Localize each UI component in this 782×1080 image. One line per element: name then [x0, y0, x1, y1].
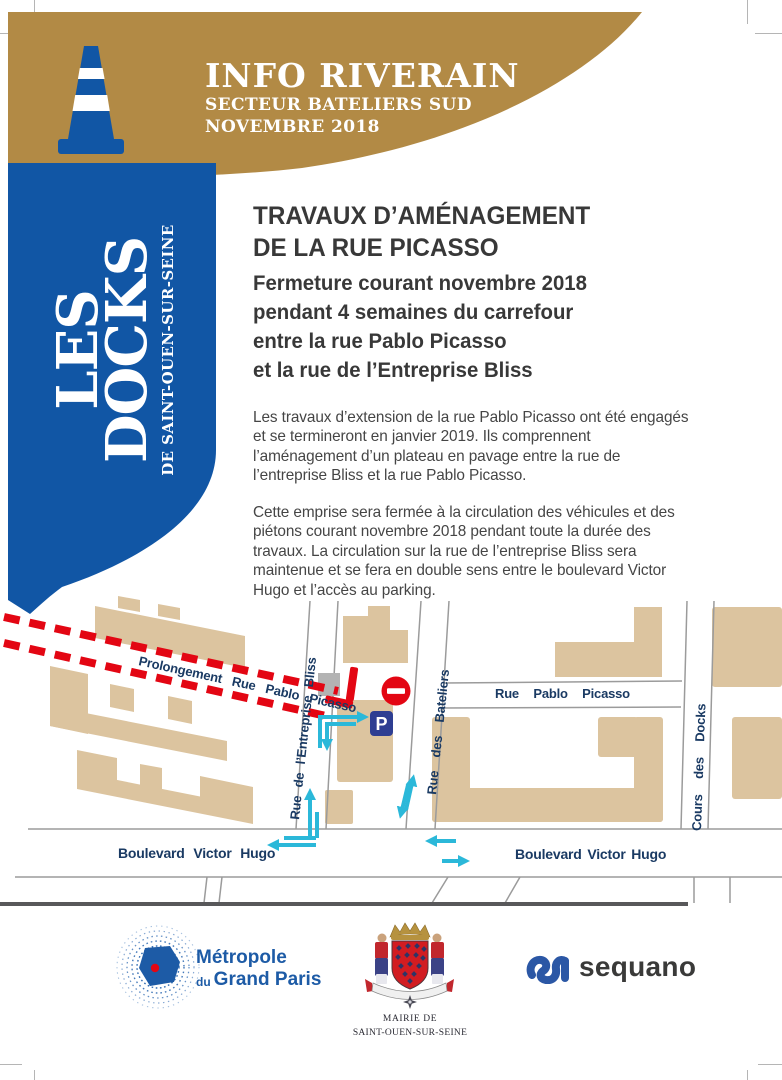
- parking-sign: P: [370, 711, 393, 736]
- header-title: INFO RIVERAIN: [205, 56, 520, 95]
- crest-shield: [392, 941, 428, 989]
- map-building: [432, 788, 663, 822]
- map-building: [732, 717, 782, 799]
- sidebar-title-docks: DOCKS: [103, 214, 152, 486]
- mairie-name-line1: MAIRIE DE: [320, 1014, 500, 1024]
- article-title-line1: TRAVAUX D’AMÉNAGEMENT: [253, 200, 719, 232]
- article-paragraph-2: Cette emprise sera fermée à la circulati…: [253, 503, 698, 601]
- map-building: [343, 606, 408, 663]
- article-title-line2: DE LA RUE PICASSO: [253, 232, 719, 264]
- sequano-wordmark: sequano: [579, 951, 696, 983]
- metropole-paris-dot: [151, 964, 159, 972]
- map-building: [325, 790, 353, 824]
- map-building: [110, 684, 134, 712]
- street-label-cours-des-docks: Cours des Docks: [689, 703, 708, 831]
- road-line-parcels: [204, 877, 730, 903]
- crop-mark: [747, 1070, 748, 1080]
- article-paragraph-1: Les travaux d’extension de la rue Pablo …: [253, 408, 698, 486]
- crop-mark: [34, 1070, 35, 1080]
- header-sector: SECTEUR BATELIERS SUD: [205, 95, 472, 115]
- map-building-cluster-west: [50, 596, 253, 824]
- crop-mark: [0, 1064, 22, 1065]
- metropole-territory-shape: [139, 946, 180, 986]
- no-entry-icon: [382, 677, 411, 706]
- article-lead-line4: et la rue de l’Entreprise Bliss: [253, 357, 719, 386]
- map-building: [712, 607, 782, 687]
- mairie-name: MAIRIE DE SAINT-OUEN-SUR-SEINE: [320, 1014, 500, 1038]
- flyer-page: INFO RIVERAIN SECTEUR BATELIERS SUD NOVE…: [0, 0, 782, 1080]
- map-building: [598, 717, 638, 757]
- mairie-crest: [362, 920, 457, 1012]
- article-lead-line1: Fermeture courant novembre 2018: [253, 270, 719, 299]
- roadworks-map: P Prolongement Rue Pablo Picasso Rue Pab…: [0, 595, 782, 915]
- article-lead-line3: entre la rue Pablo Picasso: [253, 328, 719, 357]
- street-label-boulevard-east: Boulevard Victor Hugo: [515, 846, 666, 862]
- map-building: [158, 604, 180, 620]
- crest-supporter-left: [375, 934, 388, 985]
- crest-crown: [390, 923, 430, 940]
- road-closure-bar-vertical: [346, 667, 359, 702]
- sequano-logo-icon: [525, 950, 571, 984]
- metropole-wordmark: Métropole du Grand Paris: [196, 948, 321, 989]
- header-date: NOVEMBRE 2018: [205, 117, 380, 137]
- map-building: [140, 764, 162, 792]
- metropole-wordmark-line1: Métropole: [196, 948, 321, 967]
- article-lead: Fermeture courant novembre 2018 pendant …: [253, 270, 733, 386]
- sidebar-logo: LES DOCKS DE SAINT-OUEN-SUR-SEINE: [54, 214, 177, 486]
- article-lead-line2: pendant 4 semaines du carrefour: [253, 299, 719, 328]
- parking-sign-letter: P: [375, 714, 387, 734]
- crop-mark: [758, 1064, 782, 1065]
- sidebar-subtitle: DE SAINT-OUEN-SUR-SEINE: [159, 214, 177, 486]
- map-building: [118, 596, 140, 612]
- street-label-boulevard-west: Boulevard Victor Hugo: [118, 845, 275, 861]
- article: TRAVAUX D’AMÉNAGEMENT DE LA RUE PICASSO …: [253, 200, 733, 601]
- sequano-logo: sequano: [525, 950, 696, 984]
- street-label-rue-pablo-picasso: Rue Pablo Picasso: [495, 686, 630, 701]
- map-building: [168, 696, 192, 724]
- metropole-wordmark-line2: Grand Paris: [214, 970, 322, 989]
- map-building: [555, 607, 662, 677]
- metropole-wordmark-du: du: [196, 976, 211, 989]
- mairie-name-line2: SAINT-OUEN-SUR-SEINE: [320, 1028, 500, 1038]
- metropole-logo: [113, 923, 205, 1015]
- map-building: [634, 717, 663, 822]
- crest-supporter-right: [431, 934, 444, 985]
- map-building: [50, 706, 227, 761]
